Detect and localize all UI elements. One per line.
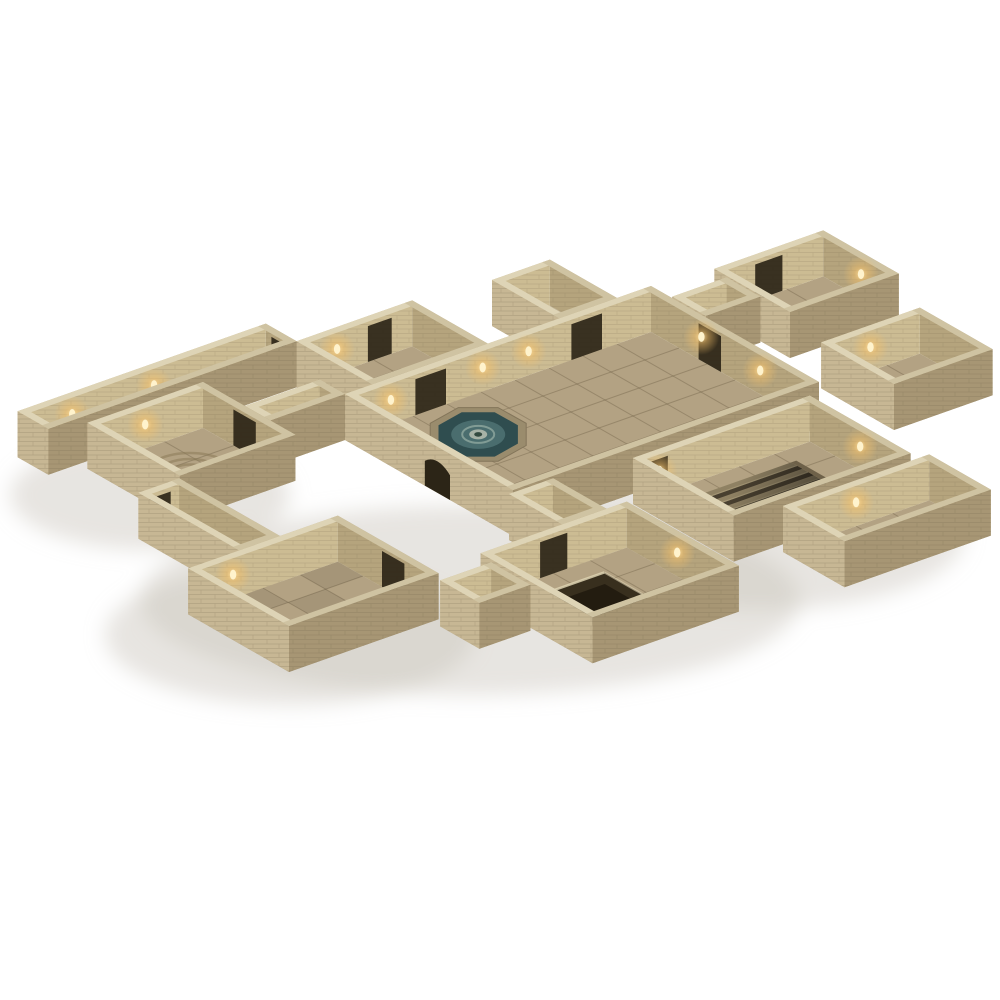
dungeon-terrain-photo [0,0,1000,1000]
torch-flame [867,342,873,352]
torch-flame [480,363,486,373]
product-photo [0,0,1000,1000]
fountain-ornament-center [474,432,482,437]
torch-flame [674,548,680,558]
torch-flame [698,332,704,342]
torch-flame [853,497,859,507]
torch-flame [388,395,394,405]
torch-flame [334,344,340,354]
torch-flame [858,269,864,279]
torch-flame [230,570,236,580]
torch-flame [857,442,863,452]
torch-flame [525,346,531,356]
torch-flame [757,366,763,376]
torch-flame [142,420,148,430]
